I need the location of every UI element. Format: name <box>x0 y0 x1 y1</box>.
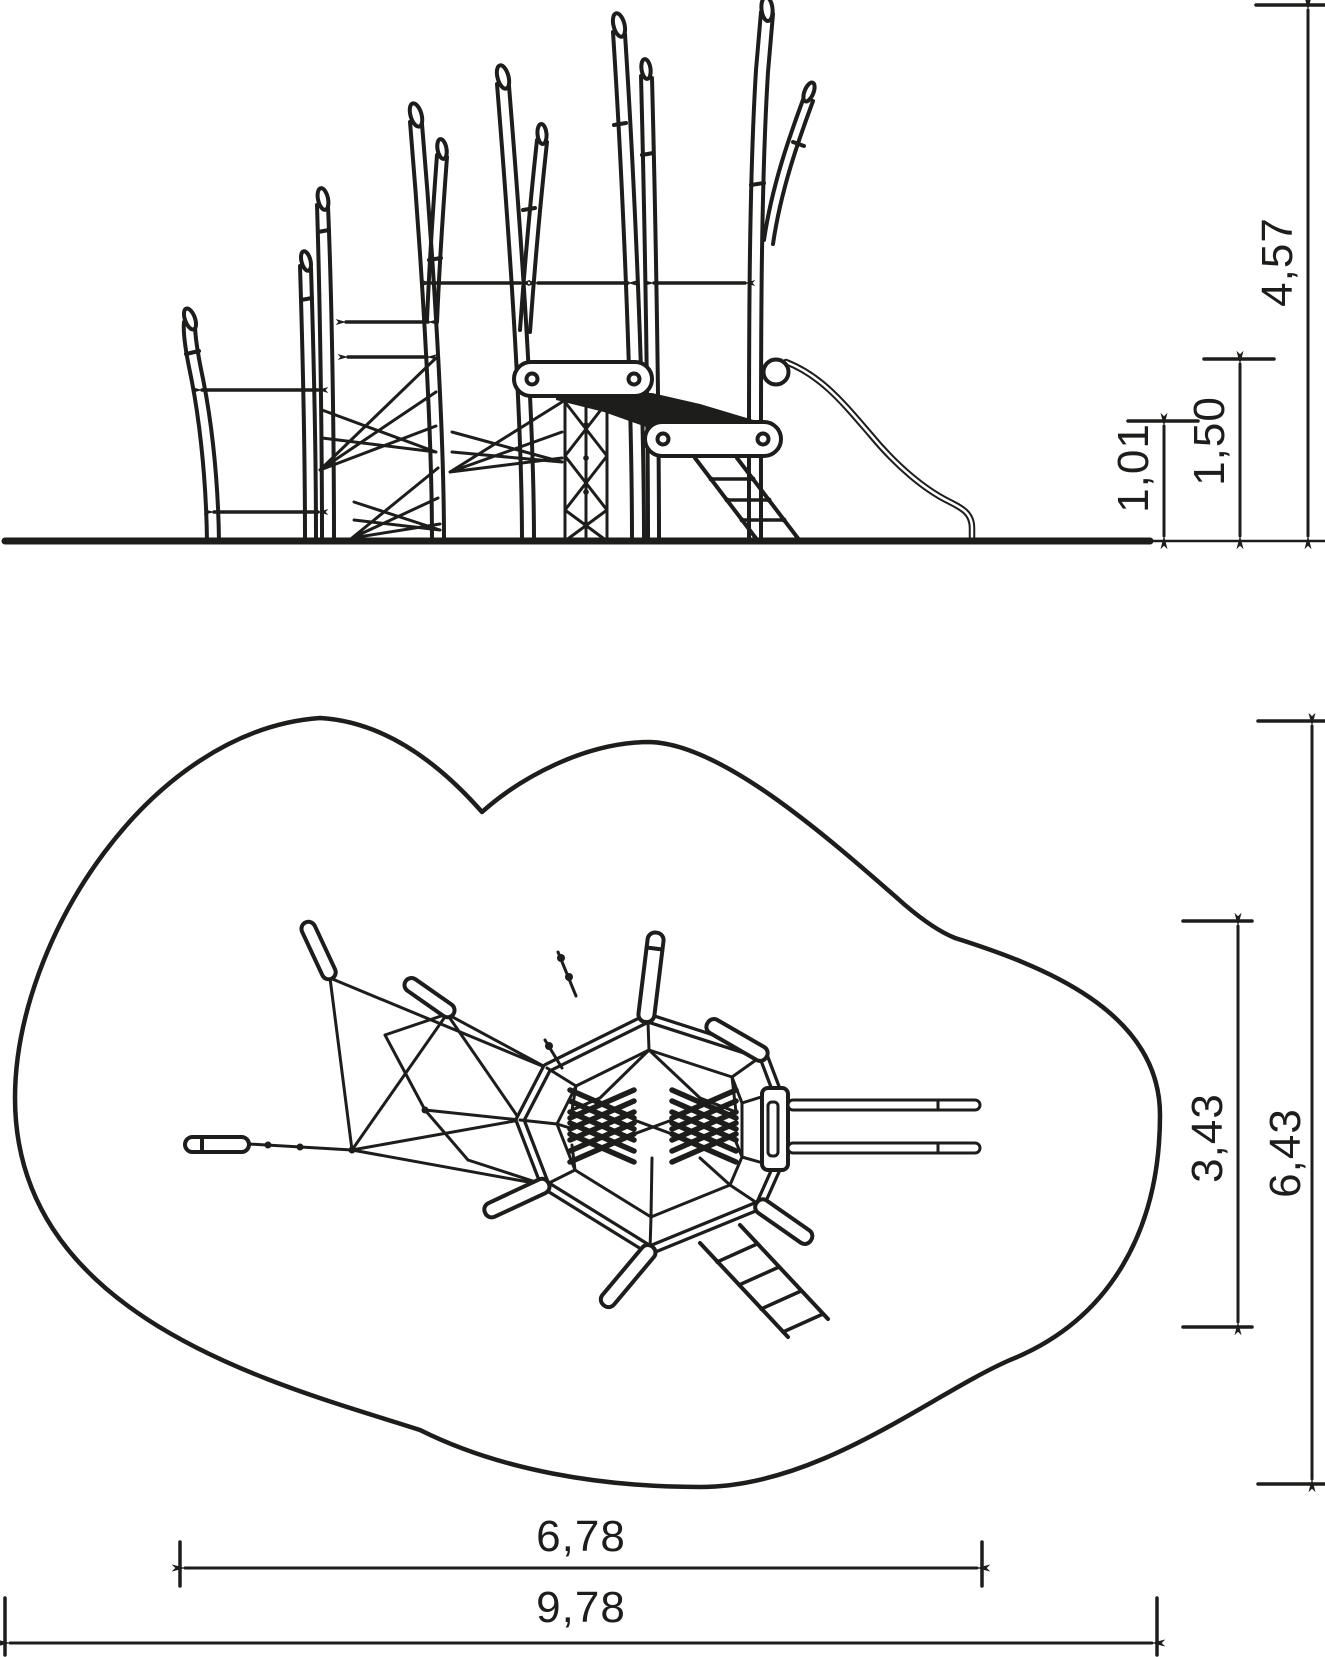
slide-ball-knob <box>764 360 789 385</box>
technical-drawing-sheet: 1,01 1,50 4,57 <box>0 0 1325 1657</box>
dimension-upper-beam-height: 1,50 <box>1185 359 1274 536</box>
slide-rails-plan <box>762 1088 980 1170</box>
left-tip-pole <box>185 1137 249 1152</box>
dim-label-1-01: 1,01 <box>1109 423 1158 513</box>
dim-label-1-50: 1,50 <box>1185 396 1234 486</box>
dimension-structure-width: 6,78 <box>180 1512 982 1586</box>
plan-pole-cylinders <box>185 919 815 1310</box>
dimension-safety-area-width: 9,78 <box>5 1583 1157 1655</box>
dimension-total-height: 4,57 <box>1253 5 1325 536</box>
curved-slide-rail <box>764 360 973 542</box>
rope-ladder-elevation <box>695 458 800 541</box>
dim-label-9-78: 9,78 <box>536 1583 626 1632</box>
slide-bracket-panel <box>762 1088 788 1170</box>
drawing-canvas: 1,01 1,50 4,57 <box>0 0 1325 1657</box>
dimension-structure-depth: 3,43 <box>1183 921 1252 1327</box>
dim-label-3-43: 3,43 <box>1183 1093 1232 1183</box>
dimension-safety-area-depth: 6,43 <box>1258 721 1325 1484</box>
woven-net-mats <box>570 1090 736 1162</box>
dim-label-6-43: 6,43 <box>1261 1108 1310 1198</box>
dim-label-4-57: 4,57 <box>1253 217 1302 307</box>
elevation-view: 1,01 1,50 4,57 <box>5 0 1325 541</box>
climbing-poles <box>182 0 817 541</box>
dim-label-6-78: 6,78 <box>536 1512 626 1561</box>
left-net-arm <box>249 978 547 1185</box>
plan-view: 3,43 6,43 6,78 9,78 <box>5 718 1325 1655</box>
